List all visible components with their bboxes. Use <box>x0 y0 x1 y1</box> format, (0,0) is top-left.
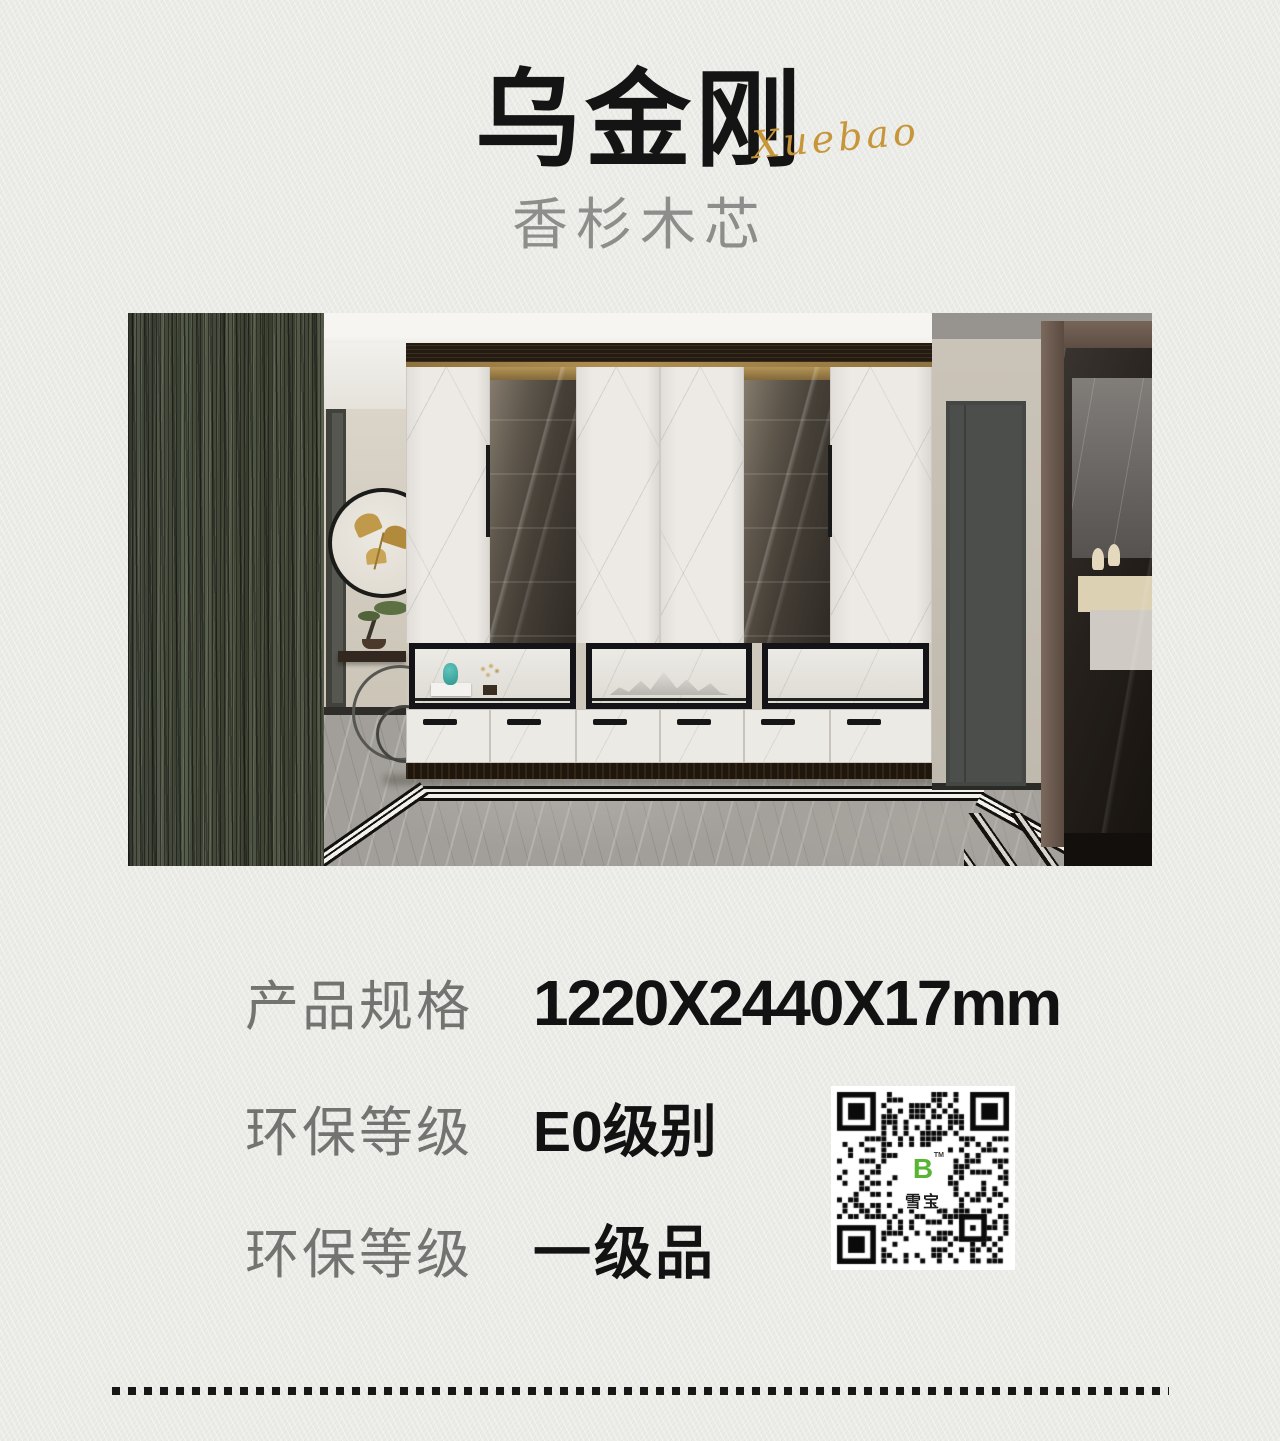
wood-grain-sample <box>128 313 324 866</box>
drawer-handle <box>677 719 711 725</box>
ginkgo-leaf-icon <box>351 510 383 539</box>
console-table <box>338 651 406 662</box>
display-niche <box>586 643 753 709</box>
drawer-handle <box>423 719 457 725</box>
spec-label: 环保等级 <box>245 1210 533 1289</box>
ceiling-soffit <box>324 343 406 415</box>
product-photo <box>128 313 1152 866</box>
drawer-row <box>406 709 932 763</box>
interior-render <box>324 313 1152 866</box>
spec-value: E0级别 <box>533 1086 717 1168</box>
niche-shelf <box>592 698 747 701</box>
cabinet-door-marble <box>406 367 490 643</box>
gray-interior-door <box>946 401 1026 786</box>
teal-jar <box>443 663 458 685</box>
glass-reflection <box>1064 348 1152 840</box>
cabinet-doors <box>406 367 932 643</box>
qr-center-logo: B TM <box>900 1150 946 1190</box>
drawer-handle <box>847 719 881 725</box>
cabinet-door-marble <box>830 367 932 643</box>
dried-flowers <box>479 663 501 687</box>
spec-label: 环保等级 <box>245 1088 533 1167</box>
partition-base <box>1064 833 1152 866</box>
trademark-mark: TM <box>934 1152 944 1159</box>
spec-value: 一级品 <box>533 1206 716 1290</box>
qr-brand-label: 雪宝 <box>831 1188 1015 1212</box>
cabinet-door-glass <box>490 367 576 643</box>
page-title: 乌金刚 <box>0 64 1280 178</box>
cabinet-door-marble <box>660 367 744 643</box>
niche-shelf <box>415 698 570 701</box>
qr-logo-letter: B <box>913 1153 933 1184</box>
spec-row-quality-grade: 环保等级 一级品 <box>245 1206 716 1290</box>
mountain-sculpture <box>610 669 730 695</box>
drawer-handle <box>761 719 795 725</box>
display-niches <box>406 643 932 709</box>
door-handle <box>828 445 832 537</box>
display-niche <box>762 643 929 709</box>
glass-reflection <box>744 367 830 643</box>
cabinet-top-beam <box>406 343 932 362</box>
drawer-handle <box>593 719 627 725</box>
cabinet-door-marble <box>576 367 660 643</box>
drawer-handle <box>507 719 541 725</box>
product-subtitle: 香杉木芯 <box>0 180 1280 261</box>
spec-value: 1220X2440X17mm <box>533 966 1060 1040</box>
door-seam <box>964 405 966 782</box>
drawer <box>406 709 490 763</box>
spec-row-size: 产品规格 1220X2440X17mm <box>245 962 1060 1041</box>
qr-code: B TM 雪宝 <box>831 1086 1015 1270</box>
wardrobe-cabinet <box>406 343 932 779</box>
bonsai-foliage <box>358 611 380 621</box>
drawer <box>576 709 660 763</box>
bonsai-foliage <box>374 601 408 615</box>
drawer <box>490 709 576 763</box>
cabinet-plinth <box>406 763 932 779</box>
dotted-divider <box>112 1387 1169 1395</box>
partition-wood-stile <box>1041 321 1064 847</box>
bonsai-pot <box>362 639 386 649</box>
door-handle <box>486 445 490 537</box>
spec-label: 产品规格 <box>245 962 533 1041</box>
niche-shelf <box>768 698 923 701</box>
glass-partition <box>1064 348 1152 840</box>
floor-inlay-band <box>419 786 984 801</box>
spec-row-eco-grade: 环保等级 E0级别 <box>245 1086 717 1168</box>
display-niche <box>409 643 576 709</box>
drawer <box>660 709 744 763</box>
product-poster: 乌金刚 Xuebao 香杉木芯 <box>0 0 1280 1441</box>
glass-reflection <box>490 367 576 643</box>
cabinet-door-glass <box>744 367 830 643</box>
drawer <box>744 709 830 763</box>
drawer <box>830 709 932 763</box>
